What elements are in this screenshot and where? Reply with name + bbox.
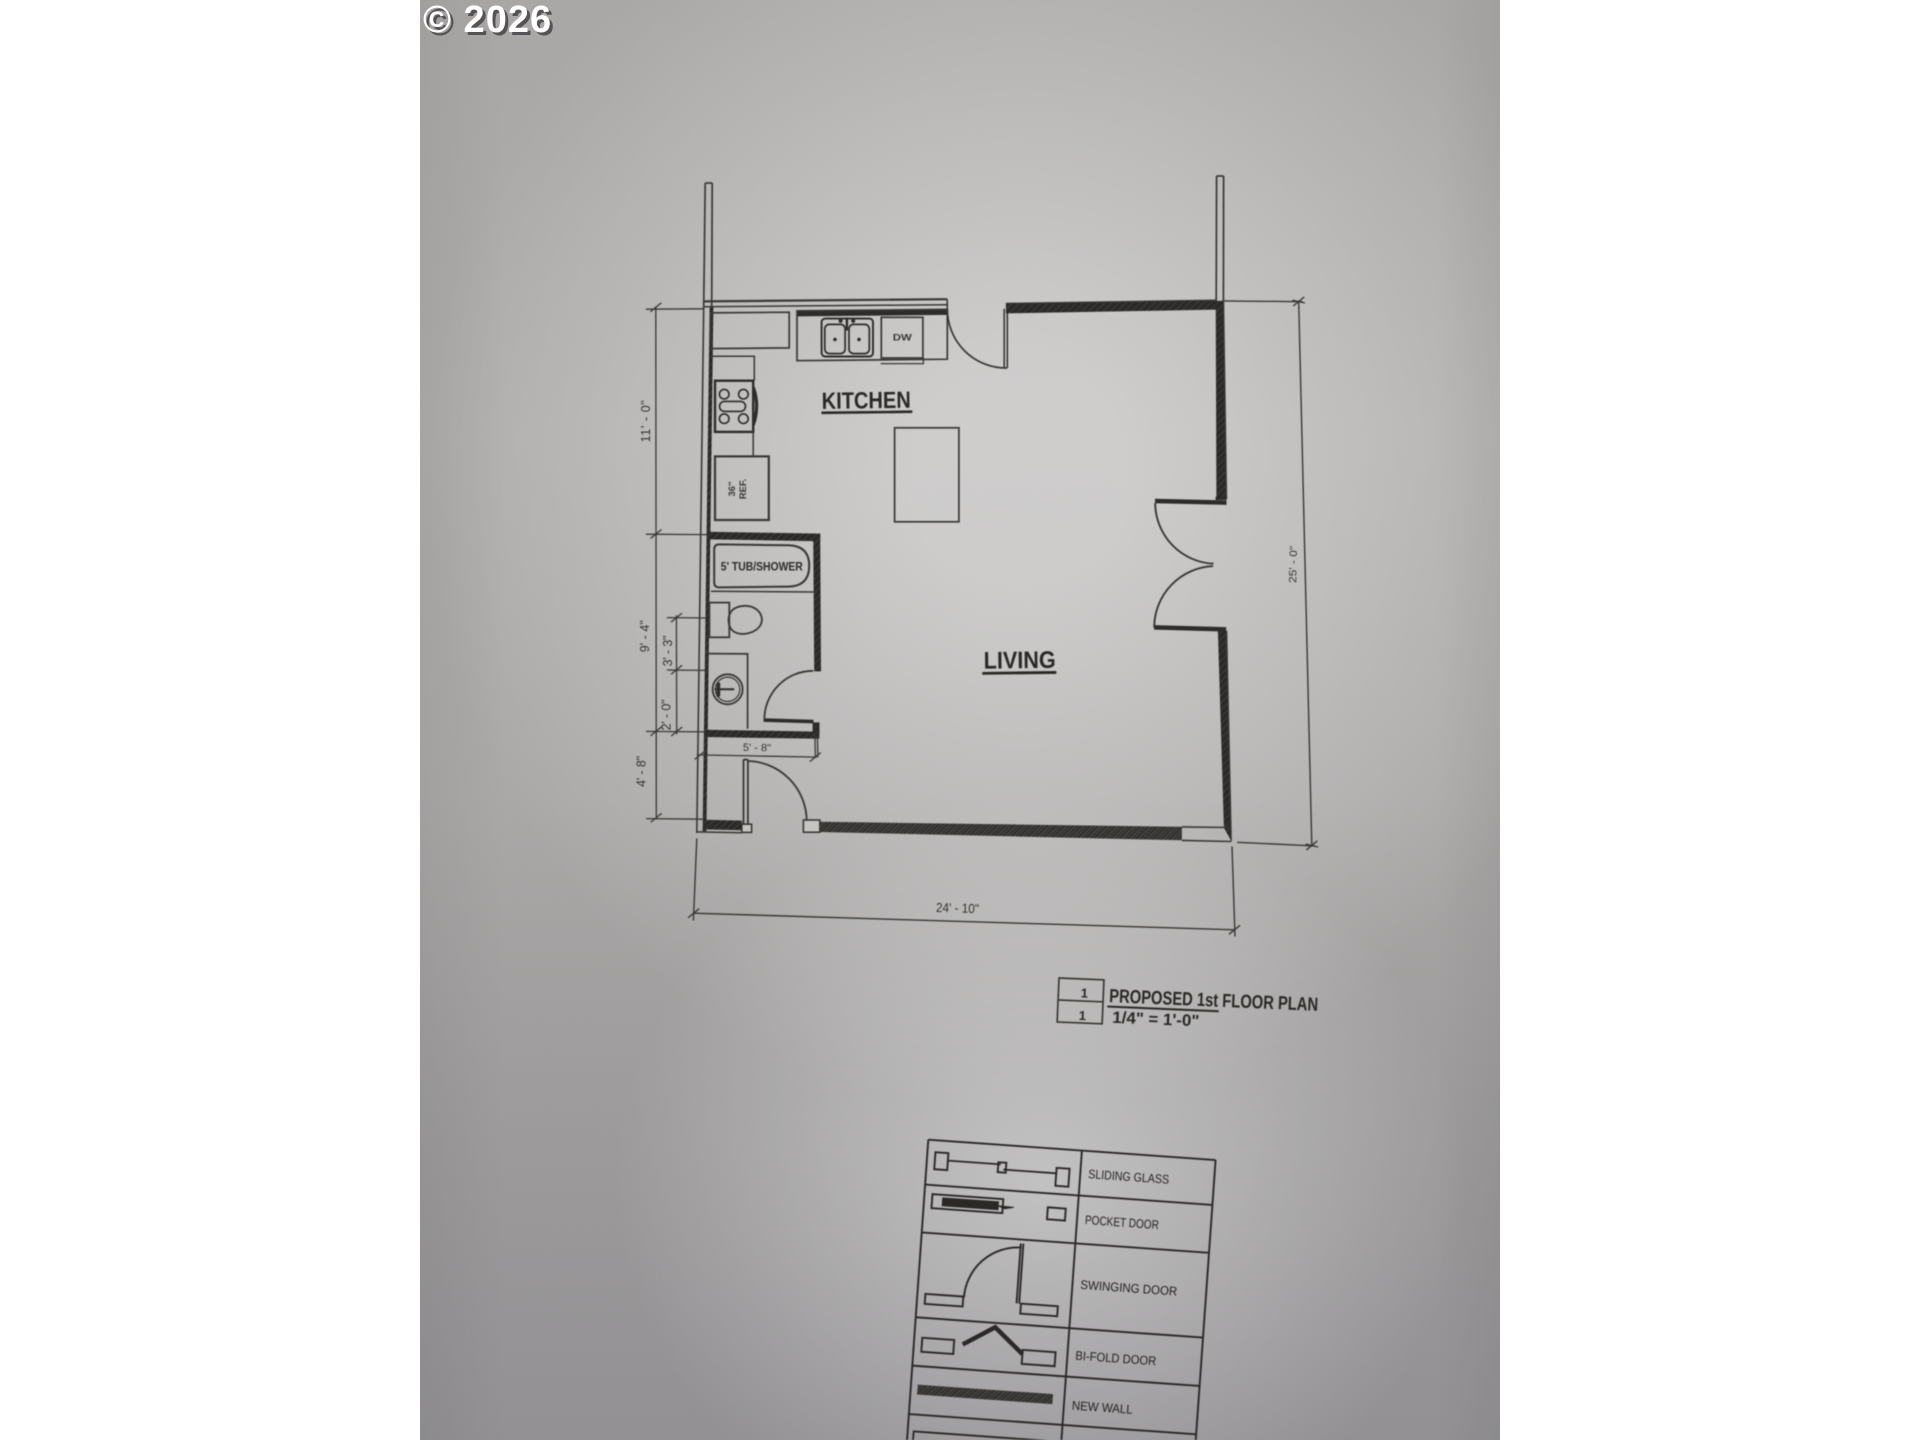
svg-text:BI-FOLD DOOR: BI-FOLD DOOR <box>1075 1349 1157 1369</box>
svg-text:REF.: REF. <box>738 479 749 500</box>
svg-text:SLIDING GLASS: SLIDING GLASS <box>1088 1167 1170 1187</box>
svg-text:9' - 4": 9' - 4" <box>638 620 652 652</box>
svg-text:1/4" = 1'-0": 1/4" = 1'-0" <box>1112 1009 1200 1031</box>
svg-text:24' - 10": 24' - 10" <box>936 900 980 916</box>
svg-text:5' - 8": 5' - 8" <box>743 742 772 755</box>
svg-text:11' - 0": 11' - 0" <box>639 400 653 442</box>
svg-text:36": 36" <box>727 481 738 496</box>
svg-text:2' - 0": 2' - 0" <box>660 699 674 730</box>
svg-text:DW: DW <box>893 333 913 343</box>
svg-text:1: 1 <box>1080 985 1088 1000</box>
svg-text:LIVING: LIVING <box>984 647 1056 675</box>
svg-text:4' - 8": 4' - 8" <box>634 756 648 787</box>
svg-text:KITCHEN: KITCHEN <box>822 387 911 414</box>
svg-text:5' TUB/SHOWER: 5' TUB/SHOWER <box>721 562 804 574</box>
svg-text:SWINGING DOOR: SWINGING DOOR <box>1080 1278 1178 1299</box>
svg-text:1: 1 <box>1079 1008 1087 1023</box>
svg-text:3' - 3": 3' - 3" <box>661 635 675 666</box>
svg-text:25' - 0": 25' - 0" <box>1287 545 1300 583</box>
svg-text:NEW WALL: NEW WALL <box>1071 1399 1133 1417</box>
svg-text:POCKET DOOR: POCKET DOOR <box>1085 1213 1160 1232</box>
